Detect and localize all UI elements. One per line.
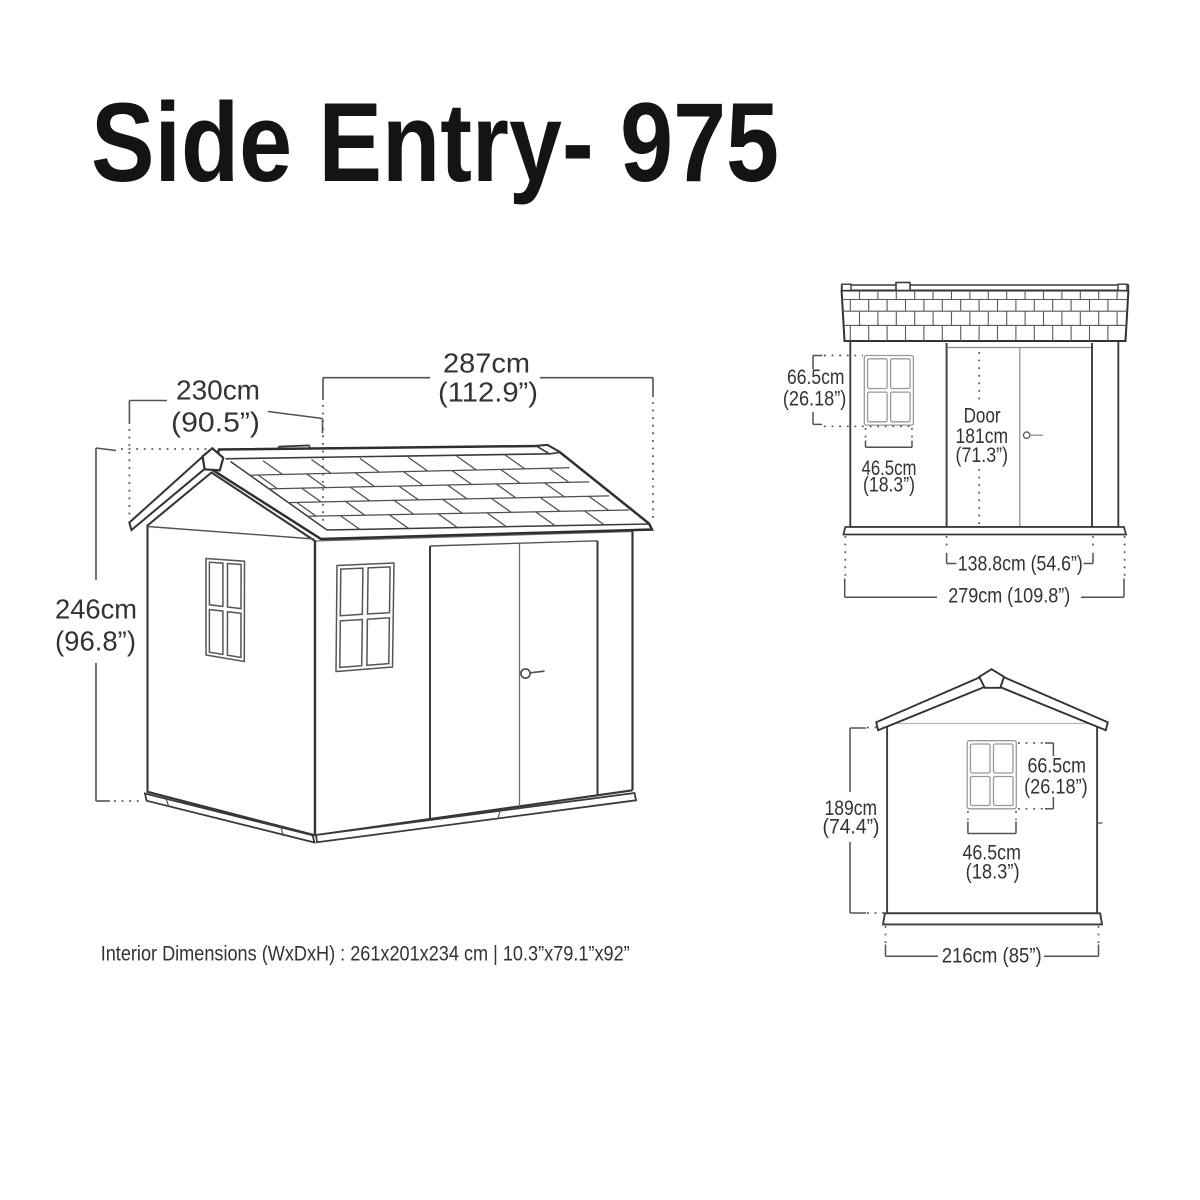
svg-text:66.5cm: 66.5cm <box>787 366 845 389</box>
svg-text:(18.3”): (18.3”) <box>966 861 1020 884</box>
svg-text:230cm: 230cm <box>176 375 260 406</box>
svg-text:(96.8”): (96.8”) <box>55 626 136 657</box>
svg-text:246cm: 246cm <box>55 594 137 625</box>
svg-text:Interior Dimensions (WxDxH) :: Interior Dimensions (WxDxH) : 261x201x23… <box>101 943 630 966</box>
svg-text:216cm (85”): 216cm (85”) <box>942 945 1042 968</box>
svg-text:Side Entry- 975: Side Entry- 975 <box>91 80 779 205</box>
svg-text:(112.9”): (112.9”) <box>438 377 538 408</box>
svg-text:66.5cm: 66.5cm <box>1027 754 1086 777</box>
svg-text:(74.4”): (74.4”) <box>823 816 880 839</box>
svg-text:(90.5”): (90.5”) <box>171 407 260 438</box>
svg-text:(71.3”): (71.3”) <box>956 444 1009 467</box>
svg-text:138.8cm (54.6”): 138.8cm (54.6”) <box>958 553 1083 576</box>
svg-text:(26.18”): (26.18”) <box>1024 776 1088 799</box>
svg-text:279cm (109.8”): 279cm (109.8”) <box>948 585 1070 608</box>
svg-text:287cm: 287cm <box>443 348 530 379</box>
svg-text:(18.3”): (18.3”) <box>863 474 915 497</box>
svg-text:(26.18”): (26.18”) <box>783 388 847 411</box>
